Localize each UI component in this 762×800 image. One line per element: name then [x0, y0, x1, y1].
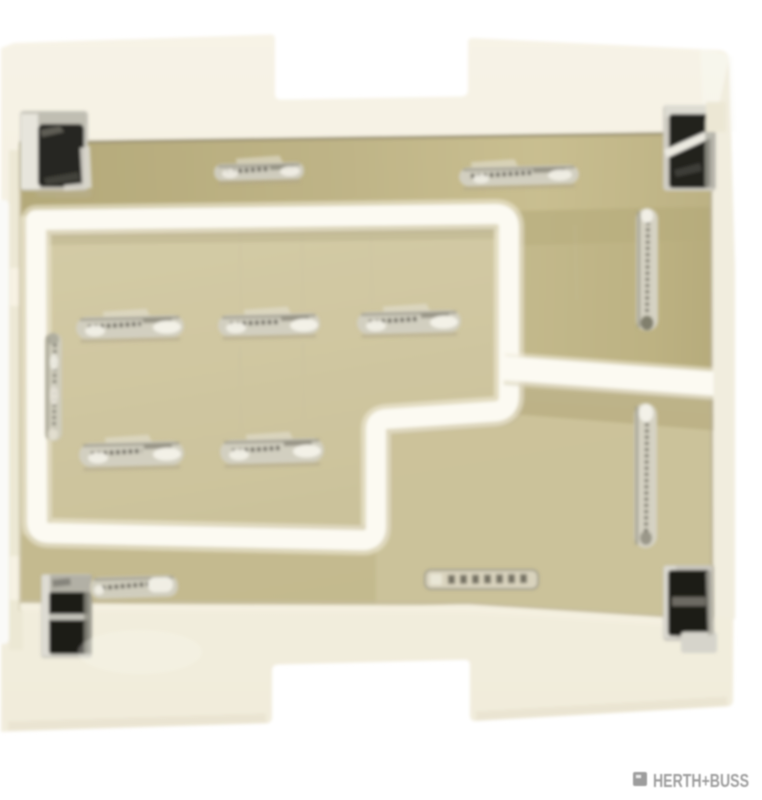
svg-text:HERTH+BUSS: HERTH+BUSS	[653, 771, 749, 791]
